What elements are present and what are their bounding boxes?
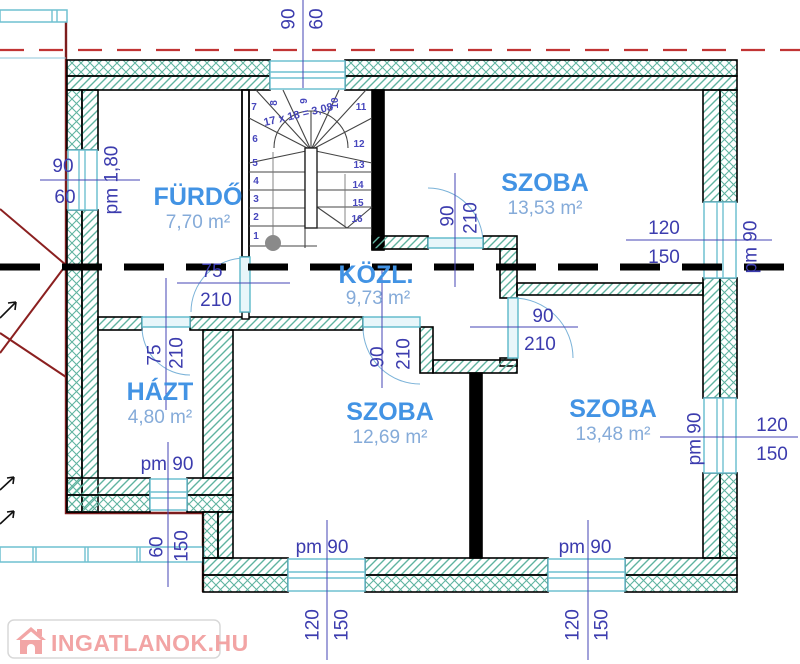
dim-door-furdo-width: 75 [201, 261, 222, 282]
dim-left-window-depth: 60 [54, 187, 75, 208]
room-area-szoba-top: 13,53 m² [508, 198, 583, 219]
watermark-text: INGATLANOK.HU [51, 630, 249, 656]
dim-bottom-left-window-width: 120 [303, 609, 324, 641]
dim-door-szoba-br-width: 90 [532, 306, 553, 327]
dim-top-window-width: 90 [279, 8, 300, 29]
step-number: 3 [253, 194, 259, 205]
step-number: 6 [252, 134, 258, 145]
step-number: 12 [353, 139, 365, 150]
dim-door-hazt-height: 210 [167, 337, 188, 369]
room-label-szoba-bottom-right: SZOBA [569, 395, 657, 423]
dim-door-szoba-top-height: 210 [461, 202, 482, 234]
step-number: 5 [252, 158, 258, 169]
step-number: 15 [352, 198, 364, 209]
dim-door-szoba-top-width: 90 [438, 205, 459, 226]
dim-left-window-width: 90 [52, 156, 73, 177]
room-area-szoba-bottom-right: 13,48 m² [576, 424, 651, 445]
dim-left-window-parapet: pm 1,80 [102, 146, 123, 215]
step-number: 14 [352, 180, 364, 191]
dim-bottom-left-window-height: 150 [332, 609, 353, 641]
room-label-furdo: FÜRDŐ [154, 182, 243, 211]
step-number: 4 [253, 176, 259, 187]
dim-bottom-right-window-parapet: pm 90 [559, 537, 612, 558]
window-right-bottom [704, 398, 736, 473]
step-number: 13 [353, 160, 365, 171]
floor-plan-page: 17 x 18 = 3,08 1 2 3 4 5 6 7 8 9 10 11 1… [0, 0, 800, 664]
room-label-hazt: HÁZT [127, 377, 194, 406]
room-area-furdo: 7,70 m² [166, 212, 230, 233]
dim-right-bottom-window-height: 150 [756, 444, 788, 465]
watermark-logo: INGATLANOK.HU [8, 620, 249, 658]
dim-right-top-window-height: 150 [648, 247, 680, 268]
dim-right-bottom-window-parapet: pm 90 [685, 413, 706, 466]
step-number: 2 [253, 212, 259, 223]
dim-door-szoba-bl-width: 90 [368, 346, 389, 367]
dim-right-top-window-parapet: pm 90 [741, 221, 762, 274]
stair-spine [305, 148, 317, 228]
dim-right-top-window-width: 120 [648, 218, 680, 239]
room-label-szoba-bottom-left: SZOBA [346, 398, 434, 426]
step-number: 10 [330, 97, 341, 109]
room-label-szoba-top: SZOBA [501, 169, 589, 197]
step-number: 8 [269, 100, 280, 106]
floor-plan-drawing: 17 x 18 = 3,08 1 2 3 4 5 6 7 8 9 10 11 1… [0, 0, 800, 664]
stair-start-marker [265, 235, 281, 251]
dim-bottom-right-window-width: 120 [563, 609, 584, 641]
dim-door-szoba-br-height: 210 [524, 334, 556, 355]
step-number: 1 [253, 231, 259, 242]
dim-door-furdo-height: 210 [200, 290, 232, 311]
dim-bottom-right-window-height: 150 [592, 609, 613, 641]
window-bottom-right [548, 559, 625, 591]
dim-bottom-left-window-parapet: pm 90 [296, 537, 349, 558]
window-top [270, 61, 345, 89]
dim-door-szoba-bl-height: 210 [394, 338, 415, 370]
dim-terrace-depth: 150 [172, 530, 193, 562]
dim-top-window-depth: 60 [307, 8, 328, 29]
step-number: 7 [251, 102, 257, 113]
room-area-szoba-bottom-left: 12,69 m² [353, 427, 428, 448]
room-label-kozl: KÖZL. [339, 260, 414, 289]
dim-right-bottom-window-width: 120 [756, 415, 788, 436]
step-number: 16 [351, 214, 363, 225]
step-number: 11 [356, 102, 367, 113]
dim-door-hazt-width: 75 [145, 344, 166, 365]
dim-hazt-window-parapet: pm 90 [141, 454, 194, 475]
room-area-kozl: 9,73 m² [346, 288, 410, 309]
room-area-hazt: 4,80 m² [128, 407, 192, 428]
dim-terrace-width: 60 [147, 536, 168, 557]
stairs: 17 x 18 = 3,08 1 2 3 4 5 6 7 8 9 10 11 1… [249, 90, 372, 251]
step-number: 9 [299, 98, 310, 104]
